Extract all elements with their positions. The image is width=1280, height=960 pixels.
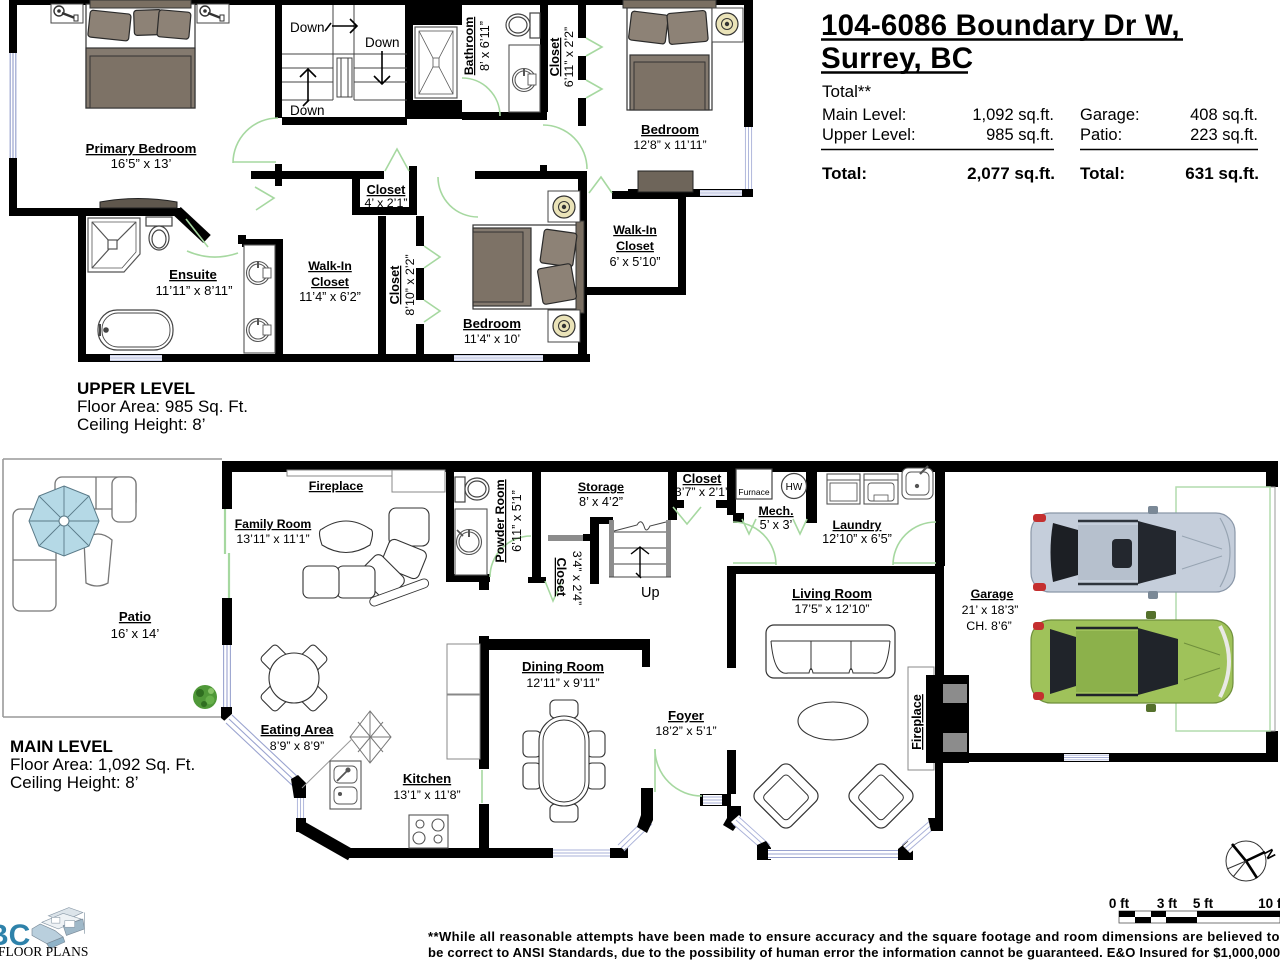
svg-text:Eating Area: Eating Area (261, 722, 334, 737)
svg-text:16’ x 14’: 16’ x 14’ (111, 626, 160, 641)
svg-text:be correct to ANSI Standards,: be correct to ANSI Standards, due to the… (428, 945, 1280, 960)
svg-text:Patio:: Patio: (1080, 126, 1122, 144)
svg-text:Bedroom: Bedroom (641, 122, 699, 137)
svg-text:Fireplace: Fireplace (309, 479, 364, 493)
svg-text:Bathroom: Bathroom (462, 17, 476, 76)
svg-text:6’11” x 5’1”: 6’11” x 5’1” (510, 490, 524, 552)
svg-text:Closet: Closet (548, 37, 562, 77)
svg-text:Family Room: Family Room (235, 517, 312, 531)
svg-text:3 ft: 3 ft (1157, 896, 1178, 911)
svg-text:Dining Room: Dining Room (522, 659, 604, 674)
svg-text:Closet: Closet (683, 472, 723, 486)
svg-text:Total:: Total: (822, 164, 867, 183)
svg-text:CH. 8’6”: CH. 8’6” (966, 619, 1011, 633)
svg-text:Laundry: Laundry (833, 518, 882, 532)
svg-text:HW: HW (786, 482, 803, 493)
svg-text:3’4” x 2’4”: 3’4” x 2’4” (570, 551, 584, 605)
svg-text:223 sq.ft.: 223 sq.ft. (1190, 126, 1258, 144)
svg-text:Main Level:: Main Level: (822, 106, 906, 124)
svg-text:Surrey, BC: Surrey, BC (821, 42, 973, 75)
svg-text:Primary Bedroom: Primary Bedroom (86, 141, 197, 156)
svg-text:4’ x 2’1”: 4’ x 2’1” (365, 196, 408, 210)
svg-text:Down: Down (290, 103, 325, 118)
svg-text:6’ x 5’10”: 6’ x 5’10” (609, 255, 660, 269)
svg-text:Floor Area: 1,092 Sq. Ft.: Floor Area: 1,092 Sq. Ft. (10, 755, 195, 774)
svg-text:Total**: Total** (822, 82, 872, 101)
svg-text:8’ x 4’2”: 8’ x 4’2” (579, 495, 623, 509)
svg-text:Closet: Closet (388, 265, 402, 305)
svg-text:10 ft: 10 ft (1258, 896, 1280, 911)
svg-text:Walk-In: Walk-In (613, 223, 657, 237)
svg-text:Storage: Storage (578, 480, 624, 494)
svg-text:17’5” x 12’10”: 17’5” x 12’10” (794, 602, 869, 616)
svg-text:Up: Up (641, 585, 660, 601)
svg-text:1,092 sq.ft.: 1,092 sq.ft. (972, 106, 1054, 124)
svg-text:5 ft: 5 ft (1193, 896, 1214, 911)
svg-text:Down: Down (290, 20, 325, 35)
svg-text:Patio: Patio (119, 609, 151, 624)
svg-text:Kitchen: Kitchen (403, 771, 451, 786)
svg-text:UPPER LEVEL: UPPER LEVEL (77, 379, 195, 398)
svg-text:Bedroom: Bedroom (463, 316, 521, 331)
svg-text:18’2” x 5’1”: 18’2” x 5’1” (655, 724, 716, 738)
svg-text:11’11” x 8’11”: 11’11” x 8’11” (156, 283, 233, 298)
svg-text:13’1” x 11’8”: 13’1” x 11’8” (393, 788, 460, 802)
svg-text:3’7” x 2’1”: 3’7” x 2’1” (675, 485, 729, 499)
svg-text:Closet: Closet (367, 183, 407, 197)
svg-text:104-6086 Boundary Dr W,: 104-6086 Boundary Dr W, (821, 9, 1180, 42)
svg-text:Powder Room: Powder Room (493, 479, 507, 562)
svg-text:408 sq.ft.: 408 sq.ft. (1190, 106, 1258, 124)
svg-text:12’10” x 6’5”: 12’10” x 6’5” (822, 532, 892, 546)
svg-text:Closet: Closet (554, 558, 568, 598)
svg-text:Ceiling Height: 8’: Ceiling Height: 8’ (77, 415, 206, 434)
svg-text:Walk-In: Walk-In (308, 259, 352, 273)
svg-text:Mech.: Mech. (758, 504, 793, 518)
svg-text:Down: Down (365, 35, 400, 50)
svg-text:8’10” x 2’2”: 8’10” x 2’2” (403, 254, 417, 315)
svg-text:Garage: Garage (971, 587, 1014, 601)
svg-text:FLOOR PLANS: FLOOR PLANS (0, 944, 88, 959)
svg-text:12’11” x 9’11”: 12’11” x 9’11” (526, 676, 599, 690)
svg-text:8’ x 6’11”: 8’ x 6’11” (478, 21, 492, 71)
svg-text:Living Room: Living Room (792, 586, 872, 601)
svg-text:Garage:: Garage: (1080, 106, 1140, 124)
svg-text:2,077 sq.ft.: 2,077 sq.ft. (967, 164, 1055, 183)
svg-text:5’ x 3’: 5’ x 3’ (760, 518, 793, 532)
svg-text:Ceiling Height: 8’: Ceiling Height: 8’ (10, 773, 139, 792)
svg-text:Ensuite: Ensuite (169, 267, 217, 282)
svg-text:Total:: Total: (1080, 164, 1125, 183)
svg-text:11’4” x 6’2”: 11’4” x 6’2” (299, 290, 361, 304)
svg-text:Fireplace: Fireplace (910, 694, 924, 750)
svg-text:16’5” x 13’: 16’5” x 13’ (111, 156, 172, 171)
svg-text:12’8” x 11’11”: 12’8” x 11’11” (633, 138, 706, 152)
svg-text:8’9” x 8’9”: 8’9” x 8’9” (270, 739, 324, 753)
svg-text:13’11” x 11’1”: 13’11” x 11’1” (236, 532, 309, 546)
svg-text:21’ x 18’3”: 21’ x 18’3” (962, 603, 1019, 617)
svg-text:985 sq.ft.: 985 sq.ft. (986, 126, 1054, 144)
svg-text:631 sq.ft.: 631 sq.ft. (1185, 164, 1259, 183)
svg-text:Closet: Closet (311, 275, 349, 289)
svg-text:Closet: Closet (616, 239, 654, 253)
svg-text:Upper Level:: Upper Level: (822, 126, 916, 144)
svg-text:Foyer: Foyer (668, 708, 704, 723)
svg-text:Floor Area: 985 Sq. Ft.: Floor Area: 985 Sq. Ft. (77, 397, 248, 416)
svg-text:11’4” x 10’: 11’4” x 10’ (464, 332, 520, 346)
svg-text:0 ft: 0 ft (1109, 896, 1130, 911)
svg-text:MAIN LEVEL: MAIN LEVEL (10, 737, 113, 756)
svg-text:Furnace: Furnace (738, 487, 769, 497)
svg-text:6’11” x 2’2”: 6’11” x 2’2” (562, 27, 576, 87)
svg-text:**While all reasonable attempt: **While all reasonable attempts have bee… (428, 929, 1280, 944)
